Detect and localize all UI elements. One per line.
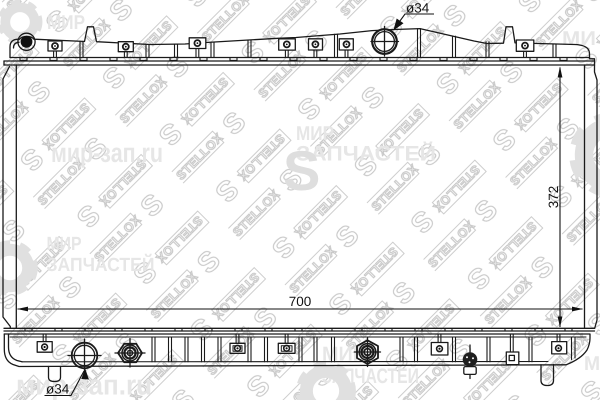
svg-text:МИР: МИР (47, 234, 82, 255)
svg-text:МИР: МИР (47, 12, 85, 34)
svg-text:ЗАПЧАСТЕЙ: ЗАПЧАСТЕЙ (47, 253, 155, 276)
svg-text:ø34: ø34 (46, 382, 70, 397)
svg-text:МИ: МИ (562, 28, 596, 50)
svg-text:МИ: МИ (584, 353, 600, 375)
svg-text:S: S (283, 139, 320, 202)
svg-text:ø34: ø34 (406, 1, 430, 16)
svg-text:372: 372 (546, 186, 561, 209)
svg-text:мир-зап.ru: мир-зап.ru (51, 138, 163, 168)
svg-text:700: 700 (289, 294, 312, 309)
